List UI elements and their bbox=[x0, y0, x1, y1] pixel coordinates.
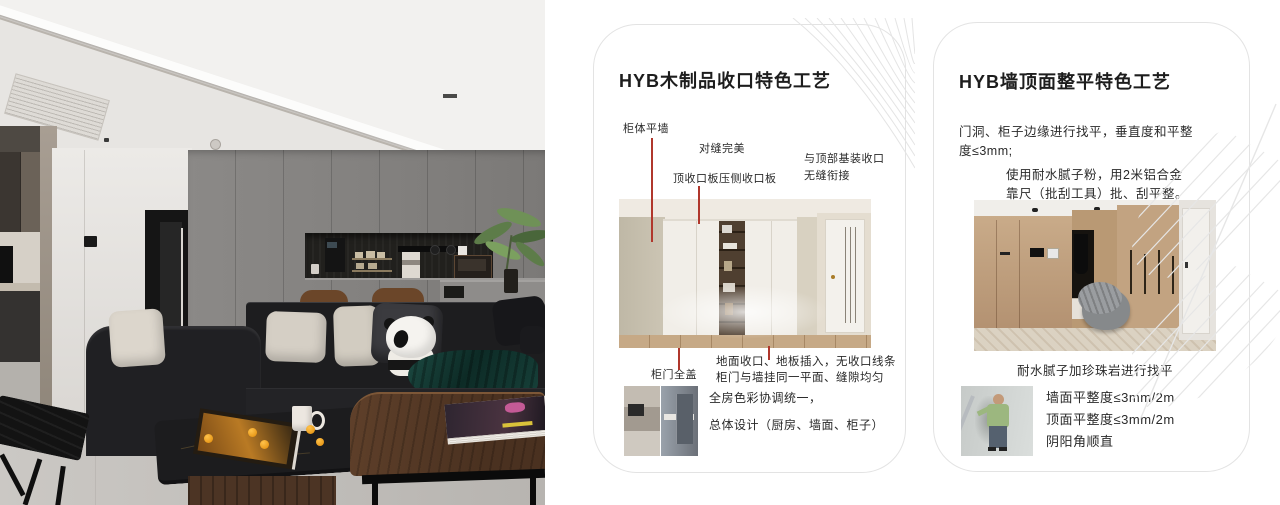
worker-shoe bbox=[999, 447, 1007, 451]
pillow bbox=[520, 326, 545, 354]
notes-line1: 地面收口、地板插入，无收口线条 bbox=[716, 354, 896, 370]
worker-shirt bbox=[987, 404, 1009, 428]
shelf-item bbox=[722, 225, 732, 233]
leveling-paragraph-2: 使用耐水腻子粉，用2米铝合金 靠尺（批刮工具）批、刮平整。 bbox=[1006, 166, 1188, 204]
image-caption: 耐水腻子加珍珠岩进行找平 bbox=[974, 362, 1216, 381]
intercom-switch bbox=[1047, 248, 1059, 259]
render-glow bbox=[659, 285, 829, 339]
summary-line1: 全房色彩协调统一， bbox=[709, 389, 884, 407]
kumquat bbox=[260, 440, 269, 449]
annotation-ceiling-joint-line1: 与顶部基装收口 bbox=[804, 151, 885, 168]
wall-socket bbox=[458, 246, 467, 255]
card-wall-leveling-craft: HYB墙顶面整平特色工艺 门洞、柜子边缘进行找平，垂直度和平整 度≤3mm; 使… bbox=[933, 22, 1250, 472]
leveling-ruler bbox=[961, 395, 975, 447]
coffee-machine-screen bbox=[327, 242, 337, 248]
card-title: HYB墙顶面整平特色工艺 bbox=[959, 68, 1171, 94]
bean-bag-blanket bbox=[1078, 282, 1122, 314]
paragraph2-line1: 使用耐水腻子粉，用2米铝合金 bbox=[1006, 166, 1188, 185]
plant-vase bbox=[504, 269, 518, 293]
cabinet-handle-slot bbox=[1158, 250, 1160, 294]
hall-white-door bbox=[1182, 208, 1210, 334]
track-knob bbox=[430, 245, 440, 255]
hanging-clothes bbox=[1074, 234, 1088, 274]
leveling-paragraph-1: 门洞、柜子边缘进行找平，垂直度和平整 度≤3mm; bbox=[959, 123, 1193, 161]
wood-table-leg bbox=[530, 476, 536, 505]
hall-door-seam bbox=[1019, 220, 1020, 336]
color-scheme-thumbnail bbox=[624, 386, 698, 456]
kitchen-upper-cabinet bbox=[0, 152, 22, 234]
door-groove bbox=[845, 227, 846, 323]
shelf-item bbox=[724, 261, 732, 271]
smoke-detector bbox=[210, 139, 221, 150]
cup bbox=[366, 251, 375, 258]
ceiling-spotlight bbox=[104, 138, 109, 142]
cup bbox=[377, 252, 385, 258]
hallway-photo bbox=[974, 200, 1216, 351]
espresso-machine bbox=[402, 252, 420, 278]
door-handle bbox=[831, 275, 835, 279]
ceiling-slot-vent bbox=[443, 94, 457, 98]
callout-line bbox=[698, 186, 700, 224]
card-woodwork-craft: HYB木制品收口特色工艺 柜体平墙 对缝完美 顶收口板压侧收口板 与顶部基装收口… bbox=[593, 24, 906, 473]
paragraph1-line2: 度≤3mm; bbox=[959, 142, 1193, 161]
callout-line bbox=[768, 346, 770, 360]
wall-corner-line bbox=[84, 150, 85, 440]
paragraph1-line1: 门洞、柜子边缘进行找平，垂直度和平整 bbox=[959, 123, 1193, 142]
hall-spotlight bbox=[1032, 208, 1038, 212]
sideboard-vent bbox=[444, 286, 464, 298]
page: { "colors": { "accent_red": "#b0372c", "… bbox=[0, 0, 1280, 505]
shelf-item bbox=[723, 243, 737, 249]
cup bbox=[368, 263, 377, 269]
cabinet-handle-slot bbox=[1130, 250, 1132, 294]
notes-text: 地面收口、地板插入，无收口线条 柜门与墙挂同一平面、缝隙均匀 bbox=[716, 354, 896, 386]
magazine bbox=[444, 396, 545, 445]
hall-door-lock bbox=[1185, 262, 1188, 268]
annotation-cabinet-flush-wall: 柜体平墙 bbox=[623, 120, 669, 136]
hall-left-wall bbox=[974, 216, 1072, 336]
annotation-ceiling-joint-line2: 无缝衔接 bbox=[804, 168, 885, 185]
spec-wall-flatness: 墙面平整度≤3mm/2m bbox=[1046, 387, 1175, 409]
annotation-perfect-seam: 对缝完美 bbox=[699, 140, 745, 156]
door-groove bbox=[855, 227, 856, 323]
callout-line bbox=[678, 348, 680, 370]
small-mug bbox=[311, 264, 319, 274]
card-title: HYB木制品收口特色工艺 bbox=[619, 67, 831, 93]
worker-shoe bbox=[988, 447, 996, 451]
cup bbox=[355, 252, 363, 258]
plant bbox=[470, 205, 545, 300]
cabinet-handle-slot bbox=[1172, 256, 1174, 294]
spec-ceiling-flatness: 顶面平整度≤3mm/2m bbox=[1046, 409, 1175, 431]
worker-thumbnail bbox=[961, 386, 1033, 456]
notes-line2: 柜门与墙挂同一平面、缝隙均匀 bbox=[716, 370, 896, 386]
summary-text: 全房色彩协调统一， 总体设计（厨房、墙面、柜子） bbox=[709, 389, 884, 434]
light-switch bbox=[84, 236, 97, 247]
annotation-ceiling-joint: 与顶部基装收口 无缝衔接 bbox=[804, 151, 885, 185]
cup bbox=[356, 263, 364, 269]
kumquat bbox=[316, 438, 324, 446]
thumb-cabinet bbox=[676, 394, 693, 444]
spec-corners: 阴阳角顺直 bbox=[1046, 431, 1175, 453]
track-knob bbox=[446, 245, 456, 255]
annotation-top-closing-panel: 顶收口板压侧收口板 bbox=[673, 170, 777, 186]
living-room-photo bbox=[0, 0, 545, 505]
worker-pants bbox=[989, 426, 1007, 448]
thumb-living bbox=[624, 386, 660, 456]
cup-shelf bbox=[352, 258, 392, 260]
wardrobe-render-image bbox=[619, 199, 871, 348]
thumb-tv bbox=[628, 404, 644, 416]
spec-list: 墙面平整度≤3mm/2m 顶面平整度≤3mm/2m 阴阳角顺直 bbox=[1046, 387, 1175, 453]
hall-door-seam bbox=[996, 220, 997, 336]
annotation-full-cover-door: 柜门全盖 bbox=[651, 366, 697, 382]
hall-door-handle bbox=[1000, 252, 1010, 255]
espresso-machine-band bbox=[402, 260, 420, 265]
pillow bbox=[108, 308, 166, 368]
callout-line bbox=[651, 138, 653, 242]
kumquat bbox=[248, 428, 257, 437]
summary-line2: 总体设计（厨房、墙面、柜子） bbox=[709, 416, 884, 434]
door-groove bbox=[850, 227, 851, 323]
kumquat bbox=[204, 434, 213, 443]
cabinet-handle-slot bbox=[1144, 254, 1146, 294]
pillow bbox=[265, 311, 327, 363]
intercom-panel bbox=[1030, 248, 1044, 257]
kumquat bbox=[306, 425, 315, 434]
cup-shelf bbox=[352, 270, 392, 272]
kitchen-coffee-machine bbox=[0, 246, 13, 284]
stone-table-base bbox=[188, 476, 336, 505]
wood-table-leg bbox=[372, 480, 378, 505]
